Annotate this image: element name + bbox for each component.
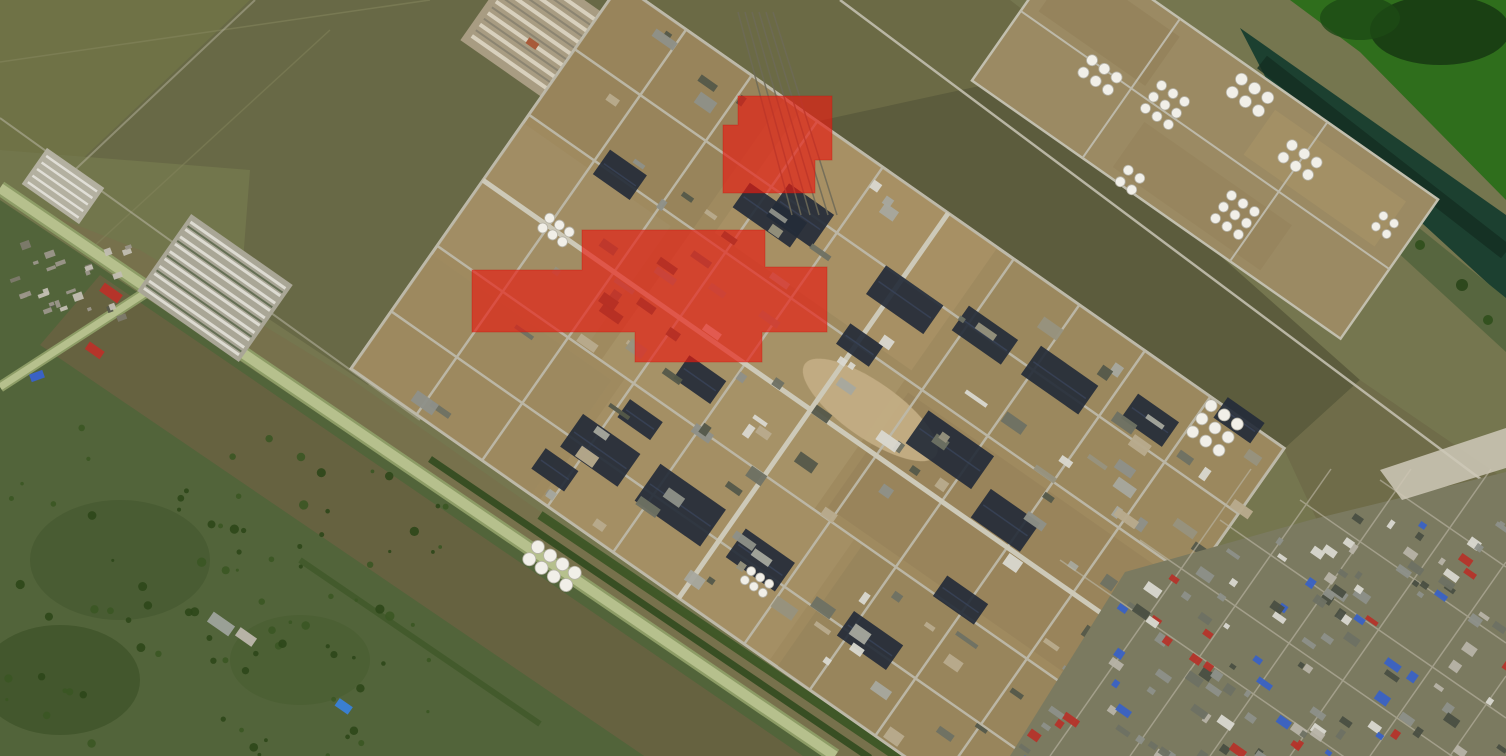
satellite-map-viewport[interactable]: [0, 0, 1506, 756]
satellite-imagery: [0, 0, 1506, 756]
